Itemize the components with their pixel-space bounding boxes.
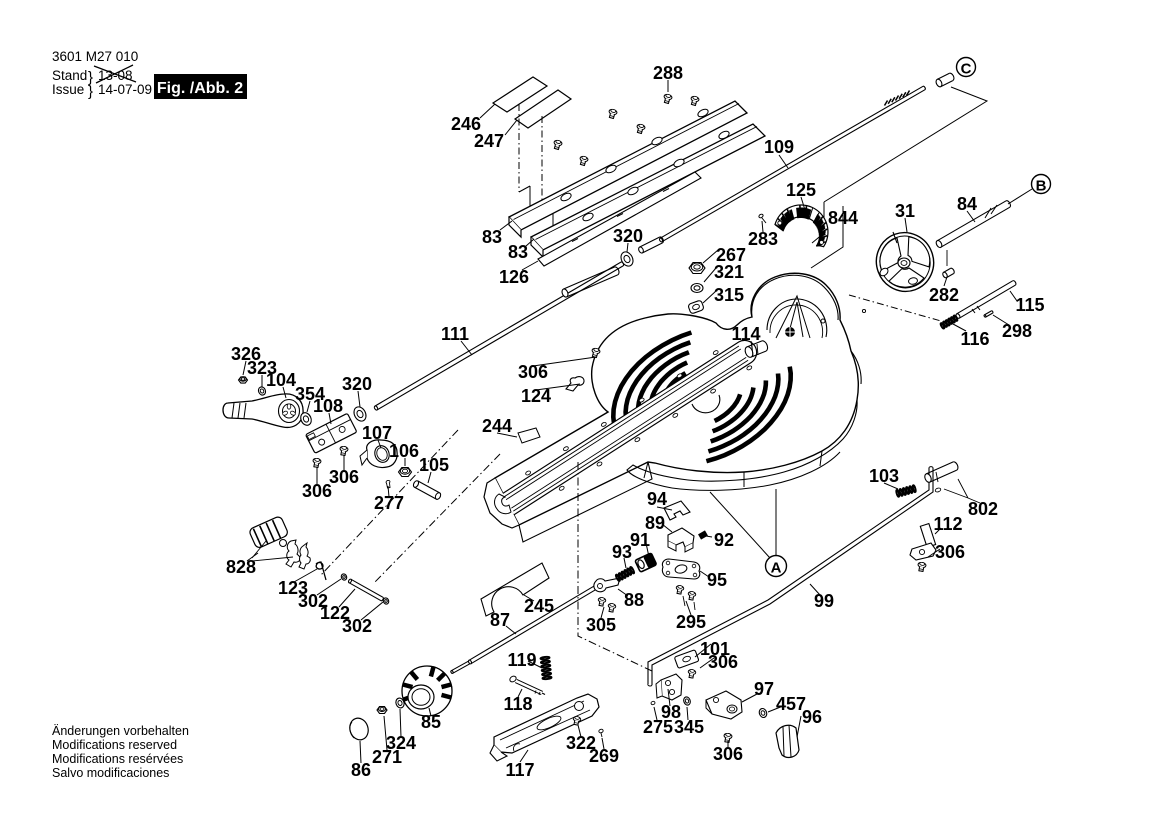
svg-text:345: 345	[674, 717, 704, 737]
svg-text:306: 306	[713, 744, 743, 764]
svg-text:97: 97	[754, 679, 774, 699]
svg-text:116: 116	[960, 329, 989, 349]
svg-text:271: 271	[372, 747, 402, 767]
svg-text:112: 112	[933, 514, 962, 534]
svg-text:3601 M27 010: 3601 M27 010	[52, 49, 138, 64]
svg-text:126: 126	[499, 267, 529, 287]
svg-text:844: 844	[828, 208, 858, 228]
svg-text:320: 320	[613, 226, 643, 246]
svg-text:Modifications reserved: Modifications reserved	[52, 738, 177, 752]
svg-text:321: 321	[714, 262, 744, 282]
svg-text:84: 84	[957, 194, 977, 214]
svg-text:Änderungen vorbehalten: Änderungen vorbehalten	[52, 724, 189, 738]
svg-text:802: 802	[968, 499, 998, 519]
svg-text:91: 91	[630, 530, 650, 550]
svg-text:14-07-09: 14-07-09	[98, 82, 152, 97]
svg-text:244: 244	[482, 416, 512, 436]
svg-text:83: 83	[482, 227, 502, 247]
svg-text:94: 94	[647, 489, 667, 509]
svg-text:117: 117	[505, 760, 534, 780]
svg-text:111: 111	[441, 324, 469, 344]
svg-text:107: 107	[362, 423, 392, 443]
svg-text:306: 306	[935, 542, 965, 562]
svg-text:B: B	[1036, 178, 1047, 195]
svg-text:108: 108	[313, 396, 343, 416]
svg-text:Stand: Stand	[52, 68, 87, 83]
svg-text:Issue: Issue	[52, 82, 84, 97]
svg-text:306: 306	[708, 652, 738, 672]
svg-text:87: 87	[490, 610, 510, 630]
svg-text:92: 92	[714, 530, 734, 550]
svg-text:125: 125	[786, 180, 816, 200]
svg-text:247: 247	[474, 131, 504, 151]
svg-text:283: 283	[748, 229, 778, 249]
svg-text:109: 109	[764, 137, 794, 157]
svg-text:302: 302	[342, 616, 372, 636]
svg-text:306: 306	[329, 467, 359, 487]
svg-text:106: 106	[389, 441, 419, 461]
svg-text:115: 115	[1015, 295, 1044, 315]
svg-text:245: 245	[524, 596, 554, 616]
svg-text:86: 86	[351, 760, 371, 780]
svg-text:93: 93	[612, 542, 632, 562]
svg-text:295: 295	[676, 612, 706, 632]
svg-text:Salvo modificaciones: Salvo modificaciones	[52, 766, 169, 780]
svg-text:13-08: 13-08	[98, 68, 133, 83]
svg-text:88: 88	[624, 590, 644, 610]
svg-text:83: 83	[508, 242, 528, 262]
svg-text:305: 305	[586, 615, 616, 635]
svg-text:95: 95	[707, 570, 727, 590]
svg-text:114: 114	[731, 324, 760, 344]
svg-text:105: 105	[419, 455, 449, 475]
svg-text:85: 85	[421, 712, 441, 732]
svg-text:Fig. /Abb. 2: Fig. /Abb. 2	[157, 80, 243, 97]
svg-text:}: }	[88, 83, 93, 100]
svg-text:828: 828	[226, 557, 256, 577]
svg-text:315: 315	[714, 285, 744, 305]
svg-text:104: 104	[266, 370, 296, 390]
svg-text:96: 96	[802, 707, 822, 727]
svg-text:Modifications resérvées: Modifications resérvées	[52, 752, 183, 766]
svg-text:288: 288	[653, 63, 683, 83]
svg-text:99: 99	[814, 591, 834, 611]
svg-text:298: 298	[1002, 321, 1032, 341]
svg-text:275: 275	[643, 717, 673, 737]
svg-text:31: 31	[895, 201, 915, 221]
svg-text:C: C	[961, 61, 972, 78]
svg-text:282: 282	[929, 285, 959, 305]
svg-text:118: 118	[503, 694, 532, 714]
svg-text:306: 306	[518, 362, 548, 382]
svg-text:124: 124	[521, 386, 551, 406]
svg-text:277: 277	[374, 493, 404, 513]
svg-text:A: A	[771, 560, 782, 577]
svg-text:269: 269	[589, 746, 619, 766]
svg-text:320: 320	[342, 374, 372, 394]
svg-text:119: 119	[507, 650, 536, 670]
svg-text:306: 306	[302, 481, 332, 501]
svg-text:103: 103	[869, 466, 899, 486]
